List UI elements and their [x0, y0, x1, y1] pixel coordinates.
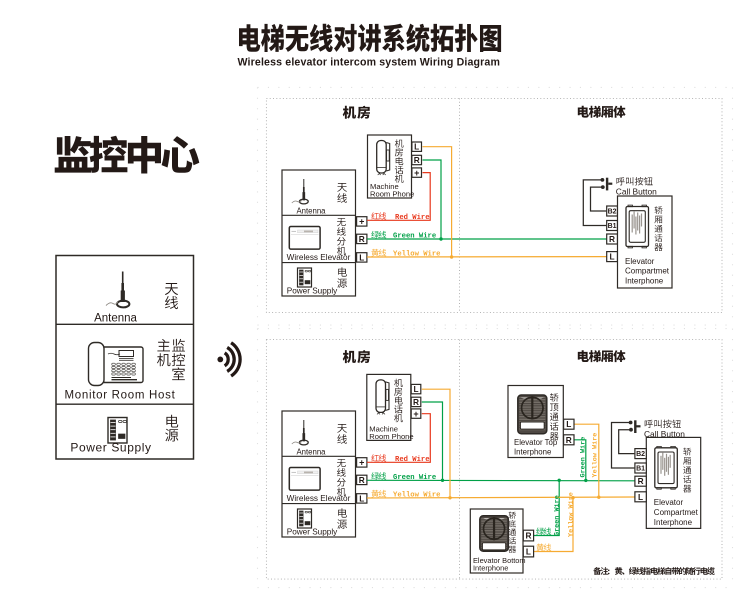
svg-text:R: R [359, 234, 365, 244]
svg-text:Call Button: Call Button [616, 187, 657, 197]
svg-text:Interphone: Interphone [654, 518, 693, 527]
svg-text:Compartmet: Compartmet [654, 508, 699, 517]
svg-text:L: L [359, 493, 364, 503]
svg-text:L: L [638, 492, 643, 502]
svg-text:B1: B1 [636, 466, 645, 473]
svg-text:L: L [359, 252, 364, 262]
svg-text:Antenna: Antenna [296, 448, 326, 457]
svg-text:+: + [413, 409, 418, 419]
svg-text:R: R [414, 155, 420, 165]
svg-text:Antenna: Antenna [94, 313, 137, 325]
svg-text:+: + [359, 217, 364, 227]
svg-text:+: + [359, 458, 364, 468]
svg-text:Elevator: Elevator [654, 498, 684, 507]
svg-text:Room Phone: Room Phone [370, 190, 414, 199]
svg-text:Green Wire: Green Wire [579, 437, 587, 478]
svg-text:Room Phone: Room Phone [369, 432, 413, 441]
svg-text:Green Wire: Green Wire [393, 474, 436, 482]
svg-text:Antenna: Antenna [296, 207, 326, 216]
svg-text:B1: B1 [608, 223, 617, 230]
svg-text:L: L [414, 142, 419, 152]
svg-text:Compartmet: Compartmet [625, 267, 670, 276]
svg-text:Wireless elevator intercom sys: Wireless elevator intercom system Wiring… [238, 57, 501, 69]
svg-text:Yellow Wire: Yellow Wire [592, 433, 600, 478]
svg-text:L: L [526, 547, 531, 557]
svg-text:Monitor Room Host: Monitor Room Host [65, 390, 176, 402]
svg-text:L: L [610, 252, 615, 262]
svg-text:+: + [414, 168, 419, 178]
svg-text:R: R [525, 531, 531, 541]
svg-text:R: R [609, 234, 615, 244]
svg-text:B2: B2 [636, 451, 645, 458]
svg-text:R: R [359, 475, 365, 485]
svg-text:R: R [566, 435, 572, 445]
svg-text:Elevator Top: Elevator Top [514, 438, 558, 447]
svg-text:Power Supply: Power Supply [70, 441, 151, 455]
svg-text:Power Supply: Power Supply [287, 528, 338, 537]
svg-text:R: R [413, 397, 419, 407]
svg-text:Red Wire: Red Wire [395, 214, 430, 222]
svg-text:B2: B2 [608, 209, 617, 216]
svg-text:Interphone: Interphone [473, 564, 508, 573]
svg-text:Elevator: Elevator [625, 257, 655, 266]
svg-text:R: R [638, 476, 644, 486]
svg-text:Yellow Wire: Yellow Wire [393, 492, 440, 500]
svg-text:Interphone: Interphone [514, 448, 551, 457]
svg-text:Interphone: Interphone [625, 276, 664, 285]
svg-text:Green Wire: Green Wire [393, 233, 436, 241]
svg-text:Green Wire: Green Wire [553, 495, 561, 536]
svg-text:Power Supply: Power Supply [287, 287, 338, 296]
svg-text:Yellow Wire: Yellow Wire [568, 492, 576, 537]
svg-text:Yellow Wire: Yellow Wire [393, 251, 440, 259]
svg-text:Red Wire: Red Wire [395, 456, 430, 464]
svg-text:L: L [413, 384, 418, 394]
svg-text:L: L [566, 419, 571, 429]
